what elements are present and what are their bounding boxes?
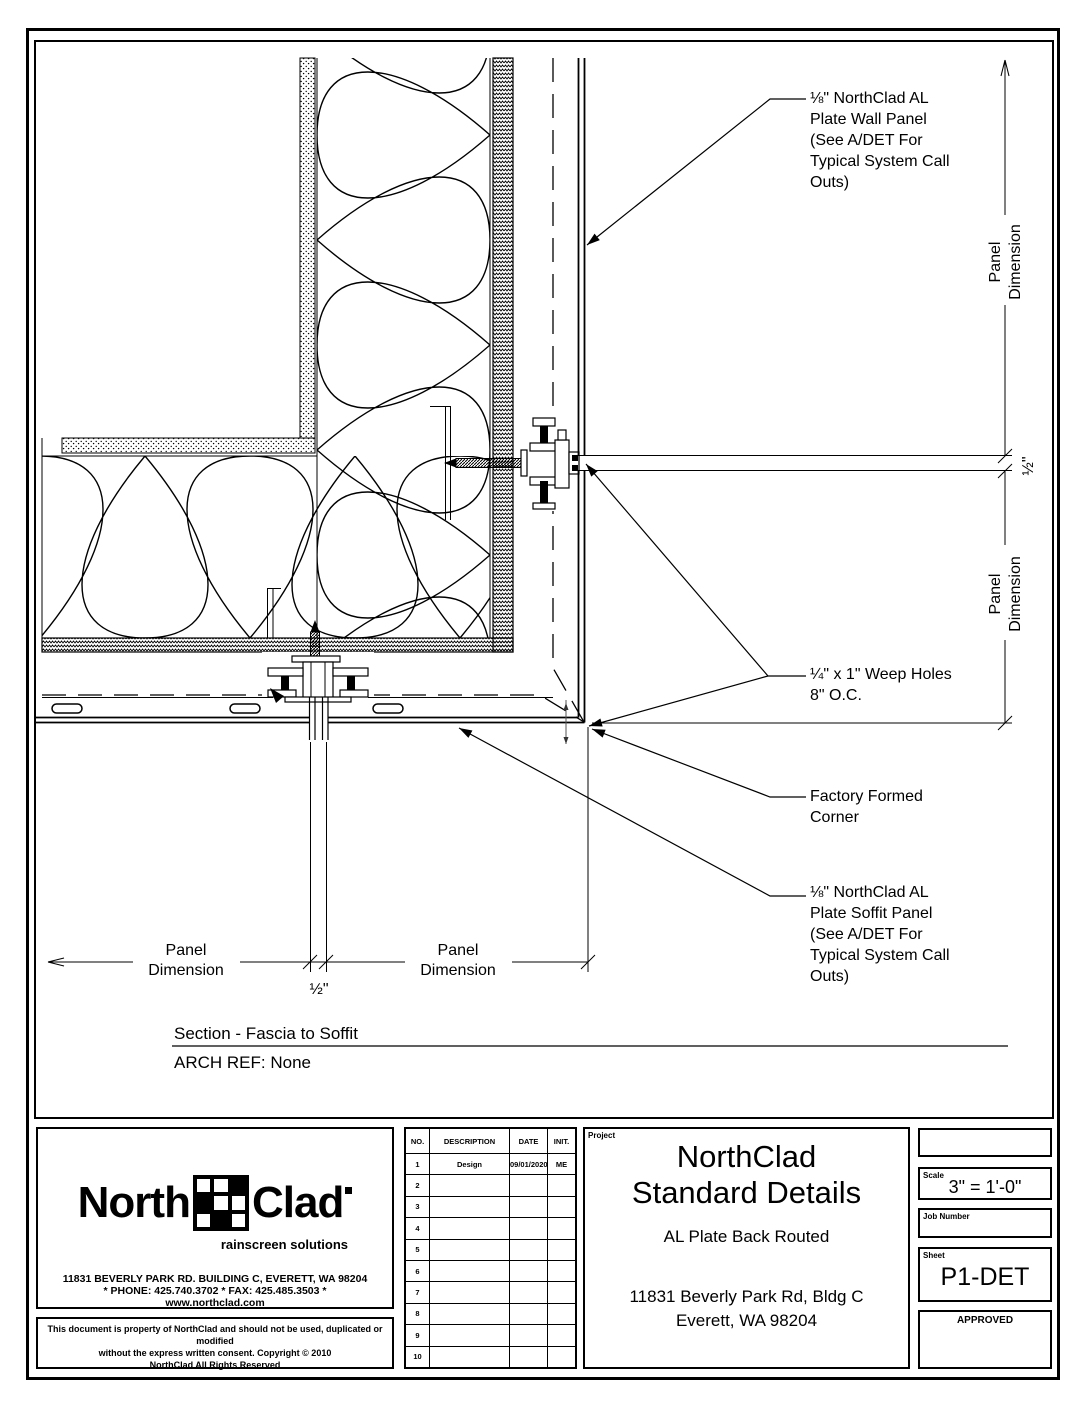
logo-grid-icon xyxy=(193,1175,249,1231)
panel-dimension-label-bottom-right: Panel Dimension xyxy=(398,941,518,981)
revision-table-body: 1Design09/01/2020ME2345678910 xyxy=(406,1154,576,1368)
arrowhead-icon xyxy=(592,729,606,738)
sheet-number: P1-DET xyxy=(920,1263,1050,1292)
table-row: 8 xyxy=(406,1303,576,1324)
col-description: DESCRIPTION xyxy=(430,1129,510,1154)
wall-screw xyxy=(444,450,527,476)
company-website: www.northclad.com xyxy=(38,1297,392,1309)
insulation-boundaries xyxy=(42,58,490,652)
half-inch-label-right: ½" xyxy=(1019,450,1039,482)
table-row: 5 xyxy=(406,1239,576,1260)
wall-panel-face xyxy=(579,58,585,723)
arrowhead-icon xyxy=(587,234,600,245)
arrowhead-icon xyxy=(459,728,472,738)
scale-label: Scale xyxy=(923,1171,944,1180)
table-row: 4 xyxy=(406,1218,576,1239)
logo-box: North Clad rainscreen solutions 11831 BE… xyxy=(36,1127,394,1309)
project-box: Project NorthClad Standard Details AL Pl… xyxy=(583,1127,910,1369)
arch-ref-label: ARCH REF: None xyxy=(174,1053,311,1073)
project-subtitle: AL Plate Back Routed xyxy=(585,1227,908,1247)
table-row: 9 xyxy=(406,1325,576,1346)
company-address: 11831 BEVERLY PARK RD. BUILDING C, EVERE… xyxy=(38,1273,392,1285)
job-number-box: Job Number xyxy=(918,1208,1052,1238)
company-phone: * PHONE: 425.740.3702 * FAX: 425.485.350… xyxy=(38,1285,392,1297)
copyright-box: This document is property of NorthClad a… xyxy=(36,1317,394,1369)
project-address2: Everett, WA 98204 xyxy=(585,1311,908,1331)
table-row: 6 xyxy=(406,1260,576,1281)
panel-dimension-label-right-bottom: Panel Dimension xyxy=(986,524,1026,664)
logo-tagline: rainscreen solutions xyxy=(221,1237,348,1252)
revision-table-header: NO. DESCRIPTION DATE INIT. xyxy=(406,1129,576,1154)
factory-corner-note: Factory Formed Corner xyxy=(810,786,1000,828)
interior-finish-layer xyxy=(62,58,315,453)
table-row: 1Design09/01/2020ME xyxy=(406,1154,576,1175)
sheet-box: Sheet P1-DET xyxy=(918,1247,1052,1302)
arrowhead-icon xyxy=(589,718,603,726)
table-row: 2 xyxy=(406,1175,576,1196)
sheet-label: Sheet xyxy=(923,1251,945,1260)
soffit-panel-note: ⅛" NorthClad AL Plate Soffit Panel (See … xyxy=(810,882,1000,987)
project-title-line1: NorthClad xyxy=(585,1139,908,1175)
section-title: Section - Fascia to Soffit xyxy=(174,1024,358,1044)
col-date: DATE xyxy=(510,1129,548,1154)
revision-table-box: NO. DESCRIPTION DATE INIT. 1Design09/01/… xyxy=(404,1127,577,1369)
approved-box: APPROVED xyxy=(918,1310,1052,1369)
col-init: INIT. xyxy=(548,1129,576,1154)
logo-reg-dot xyxy=(345,1187,352,1194)
panel-dimension-label-bottom-left: Panel Dimension xyxy=(126,941,246,981)
project-address1: 11831 Beverly Park Rd, Bldg C xyxy=(585,1287,908,1307)
table-row: 7 xyxy=(406,1282,576,1303)
logo-word-clad: Clad xyxy=(252,1181,343,1225)
job-number-label: Job Number xyxy=(923,1212,970,1221)
table-row: 3 xyxy=(406,1196,576,1217)
half-inch-label-bottom: ½" xyxy=(302,980,336,1000)
sheathing-layer xyxy=(42,58,513,652)
project-title-line2: Standard Details xyxy=(585,1175,908,1211)
revision-table: NO. DESCRIPTION DATE INIT. 1Design09/01/… xyxy=(405,1128,576,1368)
wall-insulation-batt xyxy=(317,0,490,723)
soffit-joint-clip xyxy=(262,652,374,712)
scale-value: 3" = 1'-0" xyxy=(920,1177,1050,1198)
soffit-insulation-batt xyxy=(0,456,523,638)
project-label: Project xyxy=(588,1131,615,1140)
col-no: NO. xyxy=(406,1129,430,1154)
drawing-sheet: ⅛" NorthClad AL Plate Wall Panel (See A/… xyxy=(0,0,1088,1408)
scale-box: Scale 3" = 1'-0" xyxy=(918,1167,1052,1200)
blank-box xyxy=(918,1128,1052,1157)
approved-label: APPROVED xyxy=(920,1315,1050,1326)
panel-dimension-label-right-top: Panel Dimension xyxy=(986,192,1026,332)
logo-word-north: North xyxy=(78,1181,190,1225)
wall-panel-note: ⅛" NorthClad AL Plate Wall Panel (See A/… xyxy=(810,88,1000,193)
weep-holes-note: ¼" x 1" Weep Holes 8" O.C. xyxy=(810,664,1010,706)
soffit-screw xyxy=(311,620,320,656)
northclad-logo: North Clad xyxy=(38,1175,392,1231)
table-row: 10 xyxy=(406,1346,576,1367)
